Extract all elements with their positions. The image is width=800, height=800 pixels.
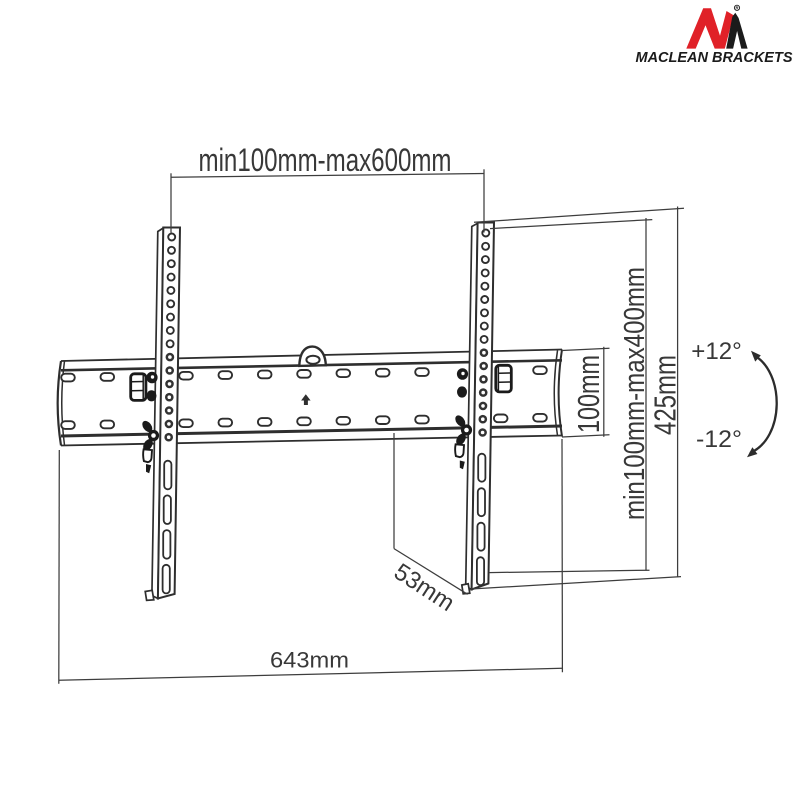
svg-text:100mm: 100mm: [571, 355, 606, 433]
svg-text:min100mm-max600mm: min100mm-max600mm: [199, 142, 452, 178]
svg-text:643mm: 643mm: [270, 648, 349, 673]
svg-text:-12°: -12°: [696, 426, 742, 453]
svg-text:min100mm-max400mm: min100mm-max400mm: [619, 267, 651, 520]
svg-text:+12°: +12°: [691, 338, 742, 365]
svg-text:R: R: [735, 5, 738, 10]
svg-text:425mm: 425mm: [647, 355, 682, 435]
svg-text:MACLEAN BRACKETS: MACLEAN BRACKETS: [636, 50, 793, 66]
